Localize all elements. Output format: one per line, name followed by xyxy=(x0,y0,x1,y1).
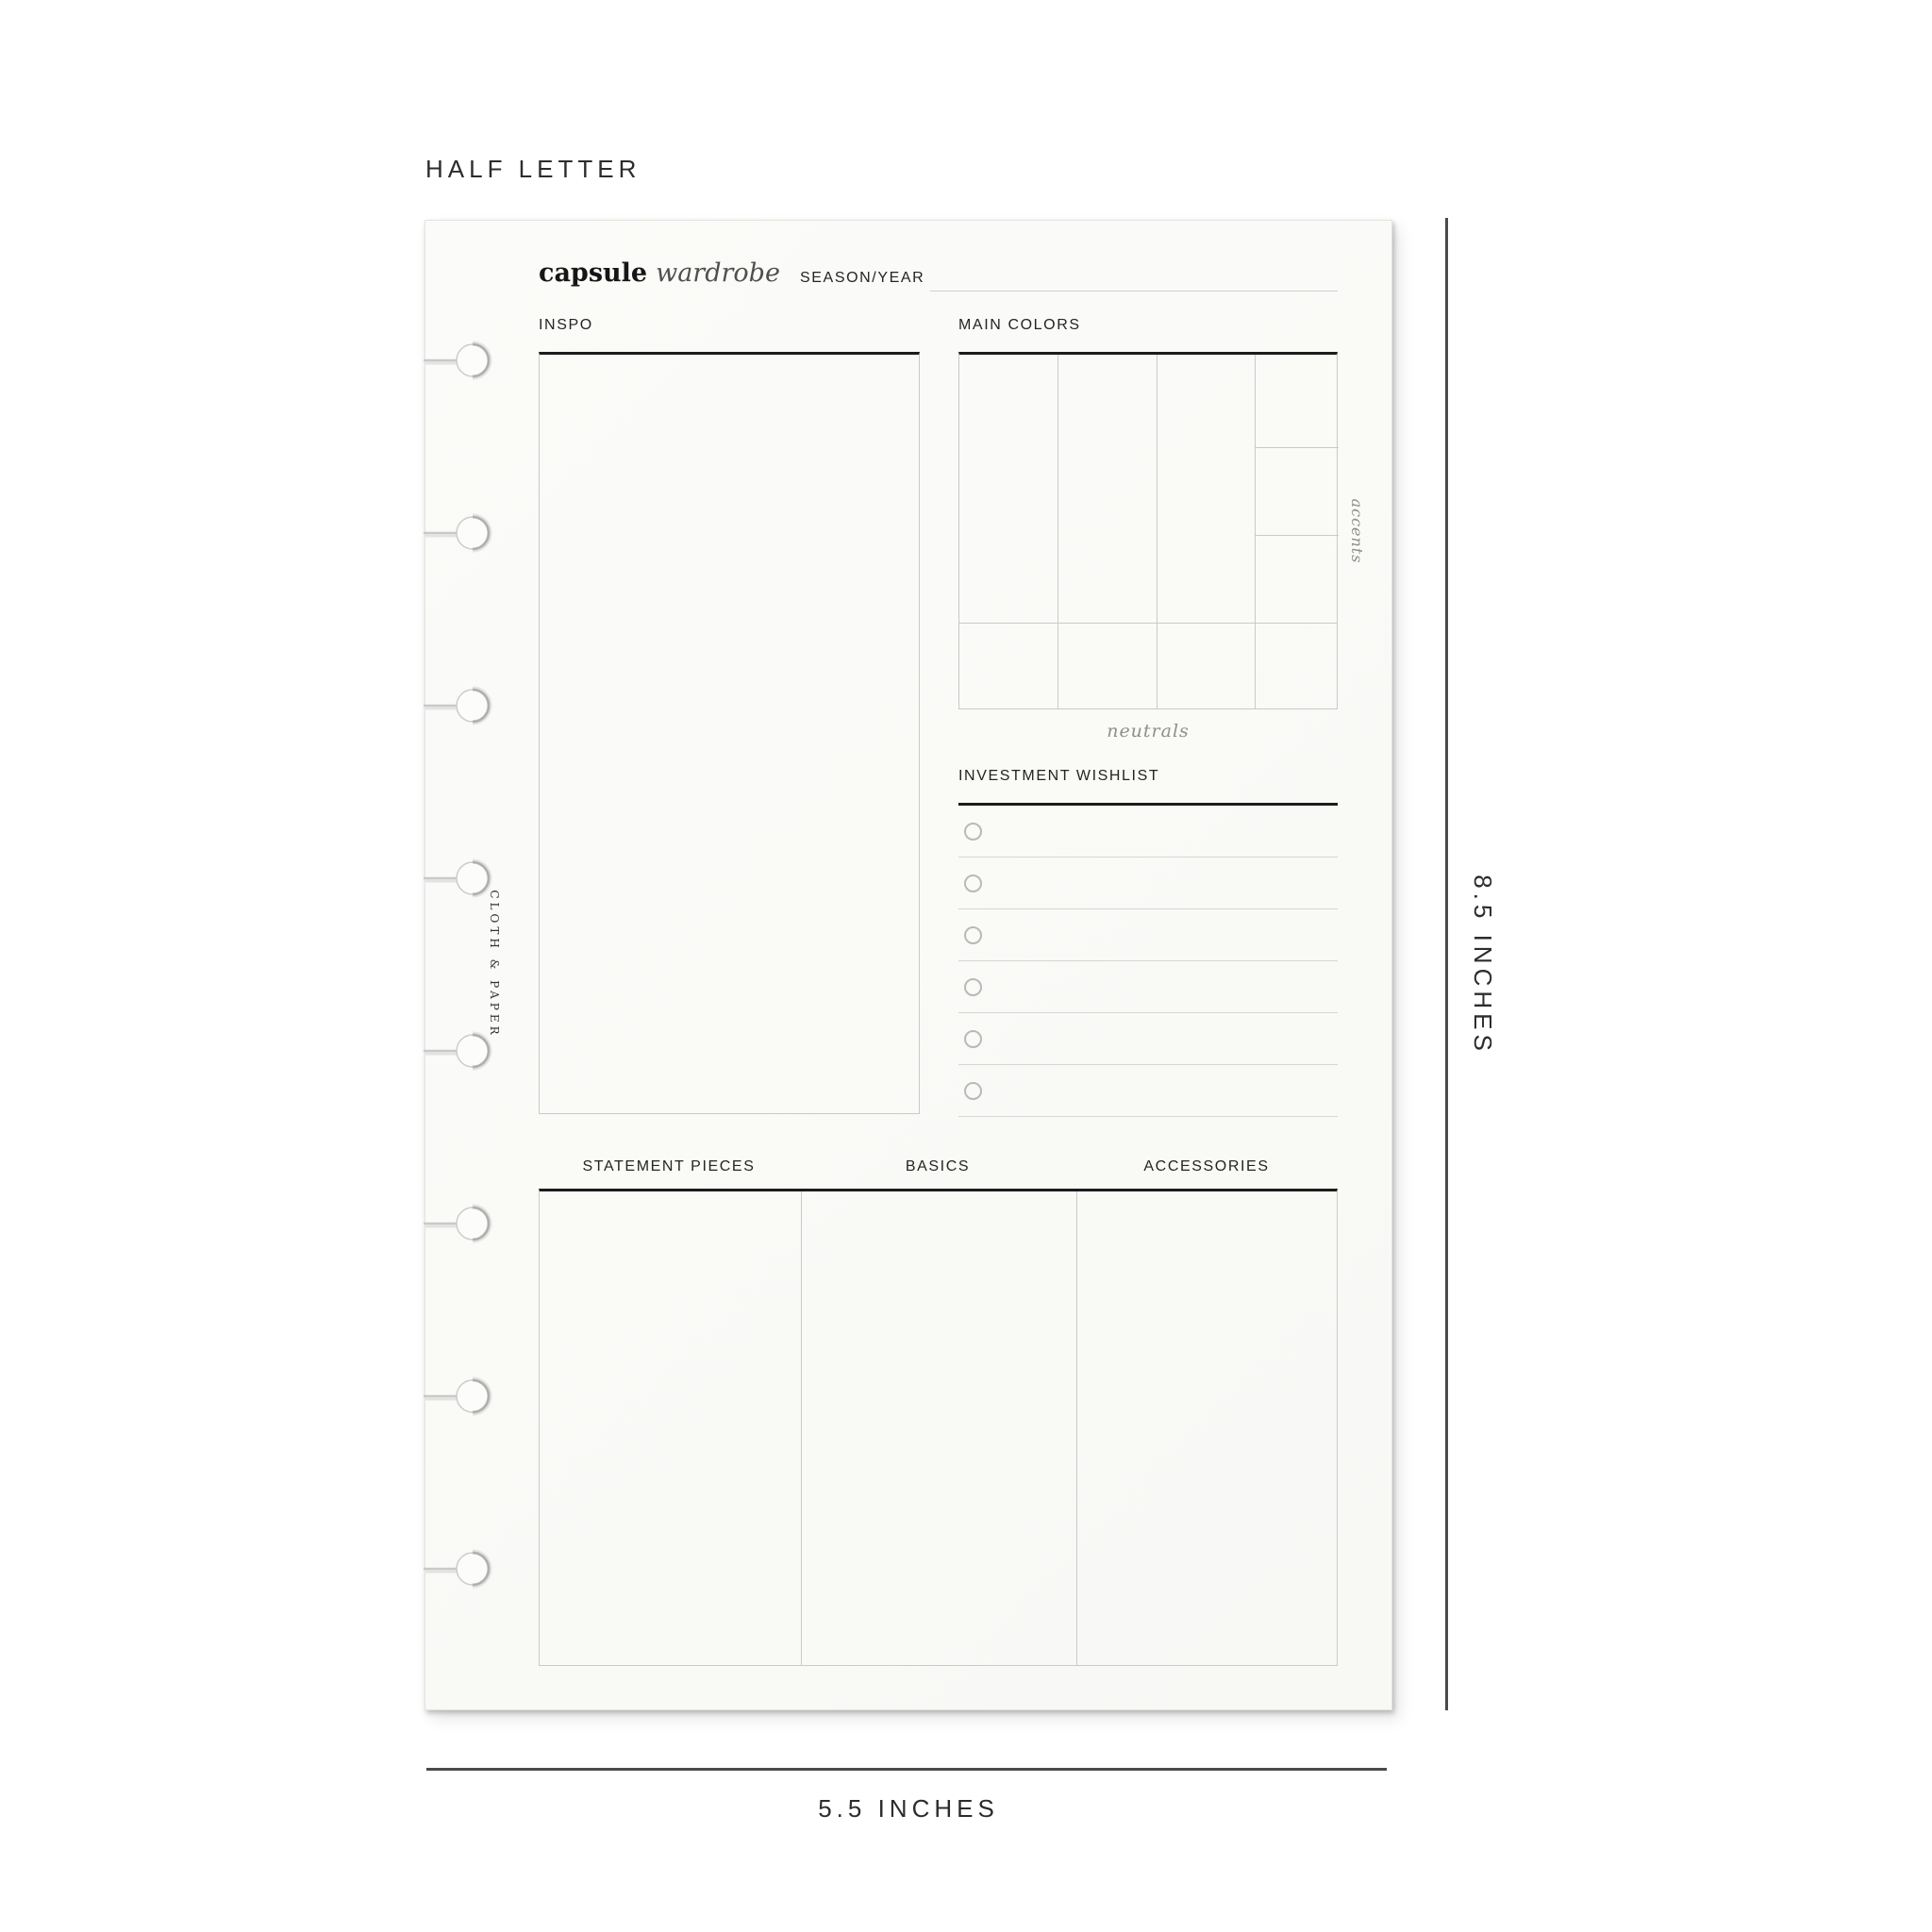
accents-label: accents xyxy=(1348,499,1366,564)
binding-hole xyxy=(424,677,495,734)
binding-hole xyxy=(424,505,495,561)
wishlist-row xyxy=(958,1065,1338,1117)
grid-line xyxy=(1255,535,1339,536)
width-dimension-label: 5.5 INCHES xyxy=(818,1794,999,1824)
wishlist-row xyxy=(958,961,1338,1013)
investment-wishlist-label: INVESTMENT WISHLIST xyxy=(958,768,1159,785)
main-colors-grid xyxy=(958,352,1338,709)
statement-pieces-label: STATEMENT PIECES xyxy=(583,1158,756,1175)
height-dimension-label: 8.5 INCHES xyxy=(1468,874,1497,1056)
basics-label: BASICS xyxy=(906,1158,970,1175)
wishlist-row xyxy=(958,858,1338,909)
binding-hole xyxy=(424,1541,495,1597)
wishlist-rows xyxy=(958,806,1338,1117)
grid-line xyxy=(959,623,1337,624)
page-title: capsulewardrobe xyxy=(539,258,780,288)
wishlist-row xyxy=(958,1013,1338,1065)
wishlist-bullet-circle xyxy=(964,823,982,841)
height-ruler-line xyxy=(1445,218,1448,1710)
wishlist-row xyxy=(958,806,1338,858)
grid-line xyxy=(1157,355,1158,708)
page-title-italic: wardrobe xyxy=(656,258,780,288)
binding-hole xyxy=(424,1368,495,1424)
neutrals-label: neutrals xyxy=(1107,721,1190,741)
wishlist-bullet-circle xyxy=(964,1082,982,1100)
page-title-bold: capsule xyxy=(539,258,647,288)
bottom-sections-table xyxy=(539,1189,1338,1666)
inspo-label: INSPO xyxy=(539,317,593,334)
season-year-label: SEASON/YEAR xyxy=(800,270,924,287)
main-colors-label: MAIN COLORS xyxy=(958,317,1081,334)
product-mockup: HALF LETTER 8.5 INCHES 5.5 INCHES CLOTH … xyxy=(0,0,1932,1932)
wishlist-bullet-circle xyxy=(964,1030,982,1048)
binding-hole xyxy=(424,332,495,389)
table-divider xyxy=(801,1191,802,1665)
wishlist-bullet-circle xyxy=(964,926,982,944)
planner-page: CLOTH & PAPER capsulewardrobe SEASON/YEA… xyxy=(425,220,1392,1710)
binding-hole xyxy=(424,1195,495,1252)
table-divider xyxy=(1076,1191,1077,1665)
size-name-label: HALF LETTER xyxy=(425,155,641,184)
binding-hole xyxy=(424,1023,495,1079)
grid-line xyxy=(1255,355,1256,708)
width-ruler-line xyxy=(426,1768,1387,1771)
inspo-box xyxy=(539,352,920,1114)
wishlist-row xyxy=(958,909,1338,961)
grid-line xyxy=(1058,355,1058,708)
grid-line xyxy=(1255,447,1339,448)
wishlist-bullet-circle xyxy=(964,874,982,892)
brand-vertical-text: CLOTH & PAPER xyxy=(488,890,501,1038)
binding-hole xyxy=(424,850,495,907)
season-year-write-line xyxy=(930,291,1338,291)
accessories-label: ACCESSORIES xyxy=(1143,1158,1269,1175)
wishlist-bullet-circle xyxy=(964,978,982,996)
